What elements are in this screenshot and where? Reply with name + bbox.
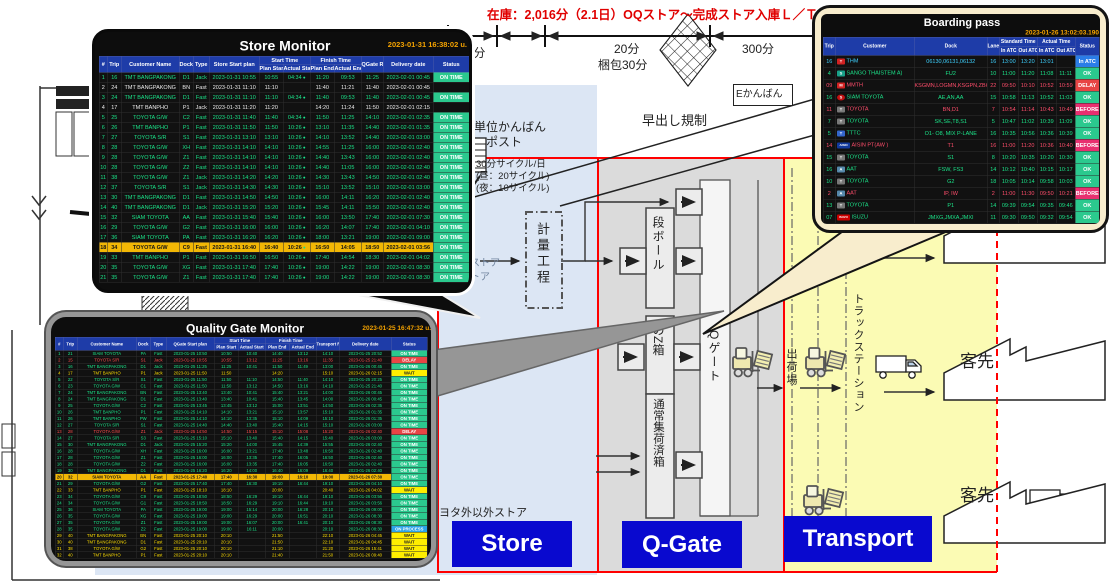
status-dot: ● [302,265,306,270]
cell: 07 [823,211,835,223]
customer-name: AAT [847,166,857,172]
cell: TMT BANGPAKONG [121,82,179,92]
cell: 14:50 [361,172,383,182]
table-row: 1028TOYOTA G/WZ2Fast2023-01-31 14:1014:1… [99,162,469,172]
cell: Jack [193,202,209,212]
cell: 10:12 [999,163,1018,175]
customer-name: MMTH [847,82,864,88]
table-row: 224TMT BANGPAKONGBNFast2023-01-31 11:101… [99,82,469,92]
status-badge: In ATC [1075,55,1099,67]
cell: 10:39 [1056,127,1075,139]
cell: TOYOTA G/W [121,272,179,282]
cell: 2023-02-01 04:10 [383,222,433,232]
customer-label-3: 客先 [960,481,994,506]
column-header: Start Time [259,56,310,64]
cell [283,102,310,112]
boarding-pass-screen: Boarding pass 2023-01-26 13:02:03.190 Tr… [821,14,1100,224]
cell: AAAT [835,163,914,175]
cell: TTOYOTA [835,199,914,211]
cell: 11 [987,211,999,223]
cell: 10:26 ● [283,212,310,222]
cell: AISINAISIN PT(AW ) [835,139,914,151]
cell: 14:30 [310,172,334,182]
cell: 10:26 ● [283,192,310,202]
cell: 14:50 [259,192,283,202]
cell: TOYOTA G/W [121,262,179,272]
cell: 11:50 [310,112,334,122]
cell: Jack [193,72,209,82]
cell: SK,SE,T8,S1 [914,115,987,127]
cell: 13:00 [999,55,1018,67]
timeline-label-300min: 300分 [742,40,774,57]
cell: 2023-02-01 01:35 [383,122,433,132]
cell: 2023-01-31 14:10 [209,162,259,172]
cell: 18:50 [361,242,383,252]
status-badge: OK [1075,175,1099,187]
cell: 2023-02-01 08:30 [383,262,433,272]
cell [433,82,469,92]
cell: 10:59 [1056,79,1075,91]
cell: 16:20 [259,232,283,242]
cell: 2023-01-31 15:40 [209,212,259,222]
cell: Z1 [179,172,193,182]
cell: 18 [987,175,999,187]
table-row: 1440TMT BANGPAKONGD1Jack2023-01-31 15:20… [99,202,469,212]
table-row: 828TOYOTA G/WXHFast2023-01-31 14:1014:10… [99,142,469,152]
cell: 2023-02-01 02:40 [383,172,433,182]
status-dot: ● [302,195,306,200]
cell: 8 [987,151,999,163]
store-fragment-2: トア [470,268,490,283]
cell: 11:13 [1018,91,1037,103]
status-badge: ON TIME [433,252,469,262]
cell: 11:00 [999,67,1018,79]
status-dot: ● [302,145,306,150]
cell: TMT BANPHO [121,102,179,112]
customer-name: ISUZU [852,214,869,220]
table-row: 16SSIAM TOYOTAAE,AN,AA1510:5811:1310:521… [823,91,1099,103]
cell: 2023-01-31 14:30 [209,182,259,192]
cell: 11:05 [334,162,361,172]
status-badge: ON PROCESS [391,526,427,533]
cell: 2023-02-01 02:40 [383,142,433,152]
cell: 2023-01-31 17:40 [209,262,259,272]
cell: 11:40 [361,92,383,102]
panel-title: Boarding pass [924,16,1000,29]
cell: TTOYOTA [835,151,914,163]
status-dot: ● [302,115,306,120]
cell: 16:00 [310,192,334,202]
status-dot: ● [302,255,306,260]
table-row: 16AAATFSW, FS31410:1210:4010:1510:17OK [823,163,1099,175]
customer-name: TOYOTA [847,118,869,124]
cell: O1- O8, MIX P-LANE [914,127,987,139]
cell: 14 [99,202,107,212]
column-header: Lane [987,37,999,55]
cell: 11:00 [999,187,1018,199]
cell: 09:50 [999,79,1018,91]
column-header: Standard Time [999,37,1037,46]
cell: 2023-01-31 14:20 [209,172,259,182]
cell: 11:02 [1018,115,1037,127]
cell: 1 [99,72,107,82]
cell: 2023-02-01 02:40 [383,162,433,172]
cell: 2 [823,187,835,199]
cell: 21:40 [265,552,289,559]
cell: 11:11 [1056,67,1075,79]
cell: TOYOTA G/W [121,112,179,122]
cell: 2023-02-01 03:56 [383,242,433,252]
cell: 17 [107,102,121,112]
cell: 10:39 [1037,115,1056,127]
cell: 13 [99,192,107,202]
status-badge: ON TIME [433,272,469,282]
cell: 14:40 [310,152,334,162]
cell: 16:00 [361,162,383,172]
status-badge: OK [1075,211,1099,223]
cell: 09 [823,79,835,91]
cell: 11:08 [1037,67,1056,79]
cell: Fast [193,152,209,162]
cell: 10:47 [999,115,1018,127]
column-header: Finish Time [310,56,361,64]
cell: 13:01 [1037,55,1056,67]
customer-name: THM [847,58,859,64]
cell: Jack [193,182,209,192]
cell: 09:35 [1037,199,1056,211]
cell: 11:40 [310,92,334,102]
cell: 38 [107,172,121,182]
cell: 2 [99,82,107,92]
cell: 17:40 [361,212,383,222]
cell: 10:26 ● [283,202,310,212]
cell: 2023-02-01 07:30 [383,212,433,222]
status-dot: ● [302,125,306,130]
cell: 10:05 [999,175,1018,187]
status-badge: ON TIME [433,212,469,222]
z-box-label: のZ箱 [650,324,667,355]
cell: 15:20 [259,202,283,212]
cell: 13:52 [334,182,361,192]
pallet-stack-icon [660,14,716,86]
customer-name: TOYOTA [847,106,869,112]
cell: 14 [823,139,835,151]
store-monitor-panel: Store Monitor 2023-01-31 16:38:02 u. #Tr… [92,29,472,293]
timeline-label-packing: 梱包30分 [598,56,647,73]
cell: 5 [987,115,999,127]
boarding-pass-table: TripCustomerDockLaneStandard TimeActual … [823,37,1100,224]
status-dot: ● [302,165,306,170]
customer-name: SANGO THAISTEM A) [847,70,903,76]
cell: 10:20 [1037,151,1056,163]
customer-name: AISIN PT(AW ) [852,142,889,148]
cell: 4 [99,102,107,112]
cell: 10 [823,175,835,187]
toyota-logo: T [837,202,845,208]
cell: 10:20 [999,151,1018,163]
customer-name: TTTC [847,130,861,136]
cell: 21 [99,272,107,282]
cell: 09:50 [1037,187,1056,199]
cell: IP, IW [914,187,987,199]
cell: 14:20 [259,172,283,182]
cell: 10 [987,67,999,79]
cell: 16 [823,163,835,175]
column-header: QGate Start plan [166,337,214,350]
cell: Fast [193,162,209,172]
cell [289,552,316,559]
cell: 09:53 [334,72,361,82]
column-subheader: Plan Start [259,64,283,72]
cell: 11:14 [1018,103,1037,115]
cell: 2023-01-31 11:10 [209,82,259,92]
cell: SSANGO THAISTEM A) [835,67,914,79]
cell: TOYOTA G/W [121,152,179,162]
cell: 3 [99,92,107,102]
cell: 10:26 ● [283,222,310,232]
table-row: 1933TMT BANPHOP1Fast2023-01-31 16:5016:5… [99,252,469,262]
cell: 10:40 [1056,139,1075,151]
cell: 14:40 [361,122,383,132]
cell: Jack [193,102,209,112]
cell: TOYOTA S/R [121,182,179,192]
status-dot: ● [302,95,306,100]
cell: BN,D1 [914,103,987,115]
status-badge: OK [1075,115,1099,127]
boarding-pass-header: Boarding pass [823,16,1100,29]
cell: 16 [107,72,121,82]
cell: P1 [136,552,150,559]
cell: 37 [107,182,121,192]
cell: 17:40 [361,222,383,232]
cell: AE,AN,AA [914,91,987,103]
cell: Fast [193,212,209,222]
cell: 10:26 ● [283,242,310,252]
cell: Fast [193,242,209,252]
inventory-note: 在庫：2,016分（2.1日）OQストア～完成ストア入庫Ｌ／Ｔ：1.8日 [487,4,860,23]
cell: P1 [179,122,193,132]
cell: 27 [107,132,121,142]
cell: 2023-01-26 09:40 [339,552,391,559]
cell: 29 [107,222,121,232]
table-row: 1138TOYOTA G/WZ1Jack2023-01-31 14:2014:2… [99,172,469,182]
cell: 28 [107,162,121,172]
cell: 35 [107,272,121,282]
column-subheader: Plan End [310,64,334,72]
cell: 11:25 [334,142,361,152]
table-row: 1330TMT BANGPAKONGD1Fast2023-01-31 14:50… [99,192,469,202]
cell: D1 [179,202,193,212]
cell: 14:11 [334,192,361,202]
cell: 15 [823,151,835,163]
status-badge: ON TIME [433,182,469,192]
cell: 24 [107,92,121,102]
status-dot: ● [302,215,306,220]
cell: 10:52 [1037,91,1056,103]
cell: 2023-02-01 02:35 [383,112,433,122]
cell: 8 [99,142,107,152]
cell: 14:10 [259,152,283,162]
cell: 14 [987,163,999,175]
cell: 2023-02-01 00:45 [383,92,433,102]
cell: Fast [193,262,209,272]
column-header: QGate Reciept [361,56,383,72]
cell: Fast [193,252,209,262]
cell: T1 [914,139,987,151]
cell: TMT BANGPAKONG [121,202,179,212]
table-row: 3240TMT BANPHOP1Fast2023-01-25 20:1020:1… [55,552,427,559]
cell: 2023-01-31 17:40 [209,272,259,282]
table-row: 1532SIAM TOYOTAAAFast2023-01-31 15:4015:… [99,212,469,222]
cell: 2023-02-01 08:30 [383,272,433,282]
cell: 11:50 [361,102,383,112]
cell: Fast [193,122,209,132]
cell: 18:30 [361,252,383,262]
cell: 10:26 ● [283,142,310,152]
cell: 14:40 [310,162,334,172]
qgate-zone-label: Q-Gate [622,521,742,568]
weighing-process-label: 計量工程 [533,222,552,286]
cell: 10:26 ● [283,172,310,182]
cell: 14 [987,199,999,211]
cell: 2023-01-31 11:50 [209,122,259,132]
table-row: 09MMMTHKSGMN,LOGMN,KSGPN,ZBO3N2209:5010:… [823,79,1099,91]
status-dot: ● [302,275,306,280]
column-header: Delivery date [383,56,433,72]
cell: 13:21 [334,232,361,242]
cell [433,102,469,112]
cell: 09:50 [1018,211,1037,223]
cell: 09:58 [1037,175,1056,187]
status-badge: ON TIME [433,222,469,232]
cell: JMXG,JMXA,JMXI [914,211,987,223]
panel-title: Store Monitor [240,38,331,54]
status-badge: ON TIME [433,72,469,82]
cell: 10:10 [1018,79,1037,91]
cell: 13:50 [334,212,361,222]
cell: 11:40 [310,82,334,92]
cell: 14:05 [334,242,361,252]
cell: C9 [179,242,193,252]
cell: 2023-01-31 16:50 [209,252,259,262]
cell: 14:07 [334,222,361,232]
cell: 11:24 [334,102,361,112]
cell: 40 [63,552,77,559]
cell: 28 [107,152,121,162]
cell: 10:26 ● [283,252,310,262]
cell: 09:30 [999,211,1018,223]
column-subheader: Out ATC [1018,46,1037,55]
cell: 15:10 [310,182,334,192]
column-header: Trip [63,337,77,350]
cell: Fast [150,552,166,559]
cell: 10:26 ● [283,272,310,282]
cell: FSW, FS3 [914,163,987,175]
cell: 16:00 [259,222,283,232]
cell: AAAT [835,187,914,199]
aat-logo: A [837,166,845,172]
cell: 16:40 [259,242,283,252]
cell: 17 [99,232,107,242]
cell: TMT BANGPAKONG [121,92,179,102]
cell: 11:20 [259,102,283,112]
table-row: 11TTOYOTABN,D1710:5411:1410:4310:49BEFOR… [823,103,1099,115]
cell: Fast [193,192,209,202]
cell: 2023-01-25 20:10 [166,552,214,559]
cell: 10:55 [259,72,283,82]
customer-label-2: 客先 [960,347,994,372]
cell: TOYOTA G/W [121,162,179,172]
panel-timestamp: 2023-01-25 16:47:32 u. [362,320,431,336]
cell: 16:50 [310,242,334,252]
table-row: 116TMT BANGPAKONGD1Jack2023-01-31 10:551… [99,72,469,82]
status-badge: BEFORE [1075,103,1099,115]
cell: 2023-01-31 14:10 [209,152,259,162]
cell: 10:26 ● [283,182,310,192]
cell: SSIAM TOYOTA [835,91,914,103]
status-badge: ON TIME [433,92,469,102]
cell [283,82,310,92]
table-row: 5TTTTCO1- O8, MIX P-LANE1610:3510:5610:3… [823,127,1099,139]
column-header: Delivery date [339,337,391,350]
column-subheader: Out ATC [1056,46,1075,55]
column-header: Store Start plan [209,56,259,72]
cell: 10 [99,162,107,172]
store-monitor-table: #TripCustomer NameDockTypeStore Start pl… [99,56,470,283]
status-badge: ON TIME [433,192,469,202]
table-row: 15TTOYOTAS1810:2010:3510:2010:30OK [823,151,1099,163]
column-header: # [55,337,63,350]
cell: D1 [179,72,193,82]
column-subheader: Plan End [265,344,289,351]
store-zone-label: Store [452,521,572,567]
sango-logo: S [837,70,845,76]
table-row: 10TTOYOTAG21810:0510:1409:5810:03OK [823,175,1099,187]
cell: 17:40 [310,252,334,262]
cell: TOYOTA G/W [121,172,179,182]
cell: 18:00 [310,232,334,242]
cell: 19 [99,252,107,262]
cell: SIAM TOYOTA [121,232,179,242]
cell: 14:55 [310,142,334,152]
cell: BN [179,82,193,92]
cell: P1 [179,252,193,262]
status-badge: ON TIME [433,242,469,252]
transport-zone-label: Transport [784,516,932,562]
qgm-header: Quality Gate Monitor 2023-01-25 16:47:32… [55,321,435,337]
table-row: 1237TOYOTA S/RS1Jack2023-01-31 14:3014:3… [99,182,469,192]
cell: 14:22 [334,262,361,272]
qgate-zone [597,157,785,573]
cell: 13:43 [334,152,361,162]
cell: D1 [179,92,193,102]
cell: 10:21 [1056,187,1075,199]
cell: 14:30 [259,182,283,192]
column-header: # [99,56,107,72]
cell: 26 [107,122,121,132]
status-badge: ON TIME [433,172,469,182]
cell: 20 [99,262,107,272]
cell: 2023-02-01 02:15 [383,102,433,112]
cell: 11 [99,172,107,182]
cell: 14:10 [259,142,283,152]
cell: Z1 [179,152,193,162]
cell: 2023-02-01 09:00 [383,232,433,242]
thm-logo: T [837,58,845,64]
cell: 11:25 [361,72,383,82]
cell: 09:46 [1056,199,1075,211]
panel-timestamp: 2023-01-26 13:02:03.190 [823,29,1100,37]
